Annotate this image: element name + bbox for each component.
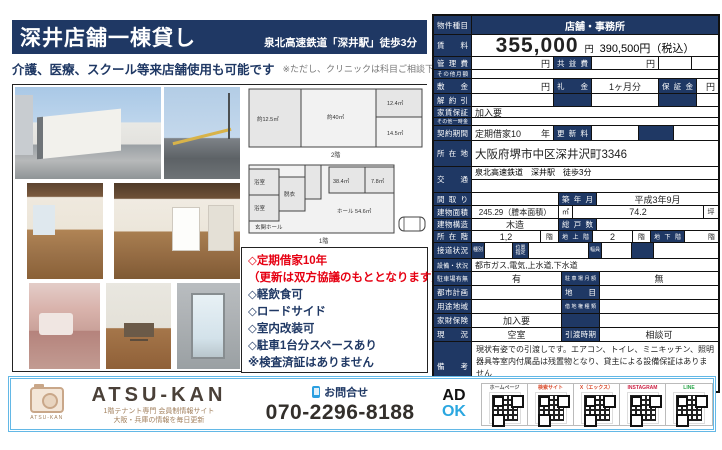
address-label: 所在地: [437, 148, 468, 159]
row-management-fee: 管理費 円 共益費 円: [434, 57, 718, 70]
camera-icon: [30, 387, 64, 413]
phone-icon: [312, 386, 320, 398]
madori-label: 間取り: [437, 194, 468, 205]
qr-homepage-code: [490, 393, 520, 423]
setsubi-label: 設備・状況: [437, 261, 468, 270]
area-value: 245.29（謄本面積）: [472, 206, 559, 218]
footer-bar: ATSU-KAN ATSU-KAN 1階テナント専門 会員制情報サイト 大阪・兵…: [8, 376, 716, 432]
ad-ok-badge: AD OK: [437, 388, 471, 420]
row-rent-guarantee: 家賃保証 加入要: [434, 107, 718, 118]
row-city-planning: 都市計画 地目: [434, 286, 718, 300]
hoshokin-label: 保証金: [662, 81, 693, 92]
car-icon: [399, 217, 425, 231]
row-layout-built: 間取り 築年月 平成3年9月: [434, 193, 718, 206]
qr-homepage[interactable]: ホームページ: [482, 384, 528, 425]
feature-item: （更新は双方協議のもととなります）: [248, 270, 423, 287]
chiku-value: 平成3年9月: [597, 193, 718, 205]
ok-text: OK: [437, 404, 471, 420]
kazai-value: 加入要: [472, 314, 562, 327]
rent-value: 355,000: [496, 35, 579, 56]
contact-block: お問合せ 070-2296-8188: [257, 384, 423, 425]
road-width-label: 幅員: [589, 243, 602, 258]
row-structure: 建物構造 木造 総戸数: [434, 219, 718, 231]
page-title: 深井店舗一棟貸し: [20, 22, 196, 52]
logo-caption: ATSU-KAN: [25, 415, 69, 421]
kaiyaku-navy-cell-2: [659, 94, 697, 106]
keiyaku-value: 定期借家10: [475, 127, 521, 140]
floor-value: 1,2: [472, 231, 541, 242]
qr-x-label: X（エックス）: [576, 385, 617, 392]
row-contract-period: 契約期間 定期借家10 年 更新料: [434, 126, 718, 141]
row-road: 接道状況 種別 位置指定 幅員: [434, 243, 718, 259]
row-parking: 駐車場有無 有 駐車場月額 無: [434, 272, 718, 286]
road-type-label: 種別: [472, 243, 485, 258]
tsubo-value: 74.2: [573, 206, 704, 218]
feature-item: ◇軽飲食可: [248, 287, 423, 304]
flyer-page: 深井店舗一棟貸し 泉北高速鉄道「深井駅」徒歩3分 介護、医療、スクール等来店舗使…: [0, 0, 722, 450]
contact-label: お問合せ: [324, 384, 368, 400]
hikiwatashi-value: 相談可: [600, 328, 718, 341]
kazai-label: 家財保険: [437, 315, 468, 326]
tsubo-unit: 坪: [704, 206, 718, 218]
chiku-label: 築年月: [562, 194, 593, 205]
row-property-type: 物件種目 店舗・事務所: [434, 16, 718, 35]
qr-line-code: [674, 393, 704, 423]
yoto-label: 用途地域: [437, 301, 468, 312]
plan1f-label-datsui: 脱衣: [284, 190, 296, 198]
feature-list: ◇定期借家10年 （更新は双方協議のもととなります） ◇軽飲食可 ◇ロードサイド…: [241, 247, 428, 373]
station-access-text: 泉北高速鉄道「深井駅」徒歩3分: [264, 35, 417, 50]
rent-tax-value: 390,500円（税込）: [600, 40, 695, 56]
road-navy-cell: [632, 243, 654, 258]
ground-floor-value: 2: [593, 231, 633, 242]
structure-value: 木造: [472, 219, 559, 230]
parking-fee-value: 無: [600, 272, 718, 285]
yachin-hosho-label: 家賃保証: [437, 107, 468, 117]
header-bar: 深井店舗一棟貸し 泉北高速鉄道「深井駅」徒歩3分: [12, 20, 427, 54]
hoshokin-unit: 円: [706, 80, 715, 93]
usage-note: ※ただし、クリニックは科目ご相談下さい: [283, 62, 453, 75]
other-monthly-label: その他月額: [437, 70, 468, 78]
structure-label: 建物構造: [437, 219, 468, 230]
plan1f-label-entrance: 玄関ホール: [255, 223, 283, 231]
yachin-hosho-value: 加入要: [472, 107, 718, 117]
qr-search-site[interactable]: 検索サイト: [528, 384, 574, 425]
qr-instagram-label: INSTAGRAM: [622, 385, 663, 392]
ground-floor-unit: 階: [633, 231, 651, 242]
qr-x-code: [582, 393, 612, 423]
plan1f-label-room-a: 38.4㎡: [333, 177, 350, 185]
plan2f-label-left: 約12.5㎡: [257, 115, 279, 123]
brand-name: ATSU-KAN: [79, 384, 240, 407]
ground-floor-label: 地上階: [562, 232, 589, 241]
toshi-label: 都市計画: [437, 287, 468, 298]
address-value: 大阪府堺市中区深井沢町3346: [472, 141, 718, 166]
plan2f-label-center: 約40㎡: [327, 113, 345, 121]
access-value: 泉北高速鉄道 深井駅 徒歩3分: [472, 167, 718, 180]
row-address: 所在地 大阪府堺市中区深井沢町3346: [434, 141, 718, 167]
row-other-monthly: その他月額: [434, 70, 718, 79]
photo-street-view: [164, 87, 240, 179]
qr-line[interactable]: LINE: [666, 384, 712, 425]
feature-item: ◇定期借家10年: [248, 253, 423, 270]
row-rent: 賃料 355,000 円 390,500円（税込）: [434, 35, 718, 57]
soukosu-label: 総戸数: [562, 219, 593, 230]
management-fee-label: 管理費: [437, 58, 468, 69]
floor-plan: 約12.5㎡ 約40㎡ 12.4㎡ 14.5㎡ 2階 浴室 浴室 脱衣 玄関ホー…: [241, 85, 428, 247]
basement-unit: 階: [708, 232, 715, 242]
qr-instagram[interactable]: INSTAGRAM: [620, 384, 666, 425]
basement-label: 地下階: [654, 232, 681, 241]
koshin-label: 更新料: [557, 128, 588, 139]
photo-interior-room-1: [27, 183, 103, 279]
shakuchi-label: 借地権種類: [565, 303, 596, 310]
parking-fee-label: 駐車場月額: [565, 275, 596, 282]
photo-exterior-building: [15, 87, 161, 179]
qr-search-site-label: 検索サイト: [530, 385, 571, 392]
brand-subtitle-1: 1階テナント専門 会員制情報サイト: [79, 407, 240, 416]
genkyo-value: 空室: [472, 328, 562, 341]
row-building-area: 建物面積 245.29（謄本面積） ㎡ 74.2 坪: [434, 206, 718, 219]
keiyaku-unit: 年: [541, 127, 550, 140]
other-onetime-label: その他一時金: [437, 118, 468, 125]
row-access: 交通 泉北高速鉄道 深井駅 徒歩3分: [434, 167, 718, 193]
shikikin-unit: 円: [541, 80, 550, 93]
plan1f-label-bath2: 浴室: [254, 204, 266, 212]
area-label: 建物面積: [437, 207, 468, 218]
rent-label: 賃料: [437, 40, 468, 51]
parking-value: 有: [472, 272, 562, 285]
qr-line-label: LINE: [668, 385, 710, 392]
row-other-onetime: その他一時金: [434, 118, 718, 126]
subtitle-row: 介護、医療、スクール等来店舗使用も可能です ※ただし、クリニックは科目ご相談下さ…: [12, 58, 427, 78]
shikikin-label: 敷金: [437, 81, 468, 92]
keiyaku-label: 契約期間: [437, 128, 468, 139]
photo-bathroom: [29, 283, 100, 369]
genkyo-label: 現況: [437, 329, 468, 340]
plan1f-label-room-b: 7.8㎡: [371, 177, 385, 185]
brand-subtitle-2: 大阪・兵庫の情報を毎日更新: [79, 416, 240, 425]
kyoueki-unit: 円: [646, 57, 655, 69]
qr-search-site-code: [536, 393, 566, 423]
brand-logo: ATSU-KAN: [25, 387, 69, 421]
qr-code-row: ホームページ 検索サイト X（エックス） INSTAGRAM LINE: [481, 383, 713, 426]
row-zoning: 用途地域 借地権種類: [434, 300, 718, 314]
plan1f-label-bath1: 浴室: [254, 178, 266, 186]
kyoueki-label: 共益費: [557, 58, 588, 69]
row-floor: 所在階 1,2 階 地上階 2 階 地下階 階: [434, 231, 718, 243]
plan2f-caption: 2階: [331, 151, 340, 159]
road-pos-label: 位置指定: [513, 243, 529, 258]
phone-number[interactable]: 070-2296-8188: [257, 401, 423, 425]
plan1f-stairs: [305, 165, 321, 199]
kaiyaku-label: 解約引: [437, 95, 468, 106]
area-unit: ㎡: [559, 206, 573, 218]
plan2f-label-bottomright: 14.5㎡: [387, 129, 404, 137]
property-type-label: 物件種目: [437, 20, 468, 31]
kazai-navy-cell: [562, 314, 600, 327]
row-current-status: 現況 空室 引渡時期 相談可: [434, 328, 718, 342]
property-type-value: 店舗・事務所: [472, 16, 718, 34]
photo-entrance-door: [177, 283, 240, 369]
row-cancellation: 解約引: [434, 94, 718, 107]
feature-item: ◇ロードサイド: [248, 304, 423, 321]
rent-unit: 円: [585, 42, 594, 55]
plan1f-caption: 1階: [319, 237, 328, 245]
kaiyaku-navy-cell-1: [554, 94, 592, 106]
management-fee-unit: 円: [541, 57, 550, 69]
row-home-insurance: 家財保険 加入要: [434, 314, 718, 328]
photo-interior-room-2: [114, 183, 240, 279]
feature-item: ◇室内改装可: [248, 321, 423, 338]
setsubi-value: 都市ガス,電気,上水道,下水道: [472, 259, 718, 271]
road-label: 接道状況: [437, 245, 468, 256]
feature-item: ◇駐車1台分スペースあり: [248, 338, 423, 355]
hikiwatashi-label: 引渡時期: [565, 329, 596, 340]
media-section: 約12.5㎡ 約40㎡ 12.4㎡ 14.5㎡ 2階 浴室 浴室 脱衣 玄関ホー…: [12, 84, 427, 372]
plan2f-label-topright: 12.4㎡: [387, 99, 404, 107]
chimoku-label: 地目: [565, 287, 596, 298]
row-utilities: 設備・状況 都市ガス,電気,上水道,下水道: [434, 259, 718, 272]
biko-label: 備考: [437, 361, 468, 372]
feature-item: ※検査済証はありません: [248, 355, 423, 372]
row-deposit: 敷金 円 礼金 1ヶ月分 保証金 円: [434, 79, 718, 94]
usage-subtitle: 介護、医療、スクール等来店舗使用も可能です: [12, 59, 275, 78]
property-detail-table: 物件種目 店舗・事務所 賃料 355,000 円 390,500円（税込） 管理…: [432, 14, 720, 393]
plan1f-label-hall: ホール 54.6㎡: [337, 207, 372, 215]
koshin-navy-cell: [639, 126, 674, 140]
qr-x[interactable]: X（エックス）: [574, 384, 620, 425]
access-label: 交通: [437, 174, 468, 185]
qr-instagram-code: [628, 393, 658, 423]
floor-label: 所在階: [437, 231, 468, 242]
brand-block: ATSU-KAN 1階テナント専門 会員制情報サイト 大阪・兵庫の情報を毎日更新: [79, 384, 240, 425]
floor-unit: 階: [541, 231, 559, 242]
qr-homepage-label: ホームページ: [484, 385, 525, 392]
reikin-value: 1ヶ月分: [592, 79, 659, 93]
parking-label: 駐車場有無: [437, 274, 468, 283]
reikin-label: 礼金: [557, 81, 588, 92]
photo-interior-room-3: [106, 283, 171, 369]
ad-text: AD: [437, 388, 471, 404]
